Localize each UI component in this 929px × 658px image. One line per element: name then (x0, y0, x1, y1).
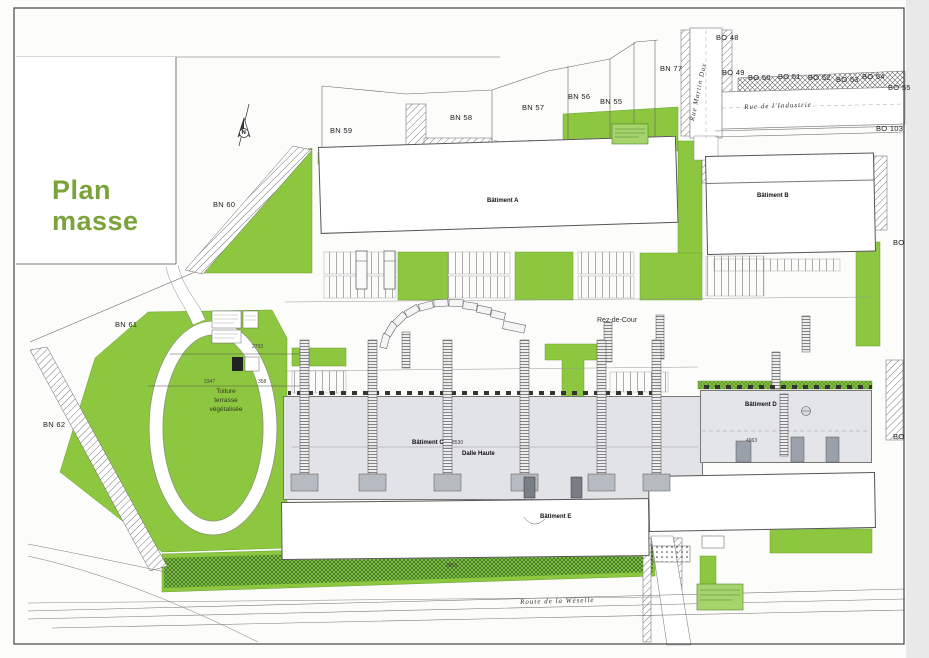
site-plan-sheet: Plan masse (0, 0, 929, 658)
sheet-frame (14, 8, 904, 644)
title-block-border (16, 57, 176, 264)
annotation-boxes (212, 124, 743, 610)
north-arrow-icon (238, 104, 250, 146)
site-drawing-foreground (0, 0, 929, 658)
stairs-ladders (300, 340, 788, 474)
leader-arrow (524, 517, 545, 524)
